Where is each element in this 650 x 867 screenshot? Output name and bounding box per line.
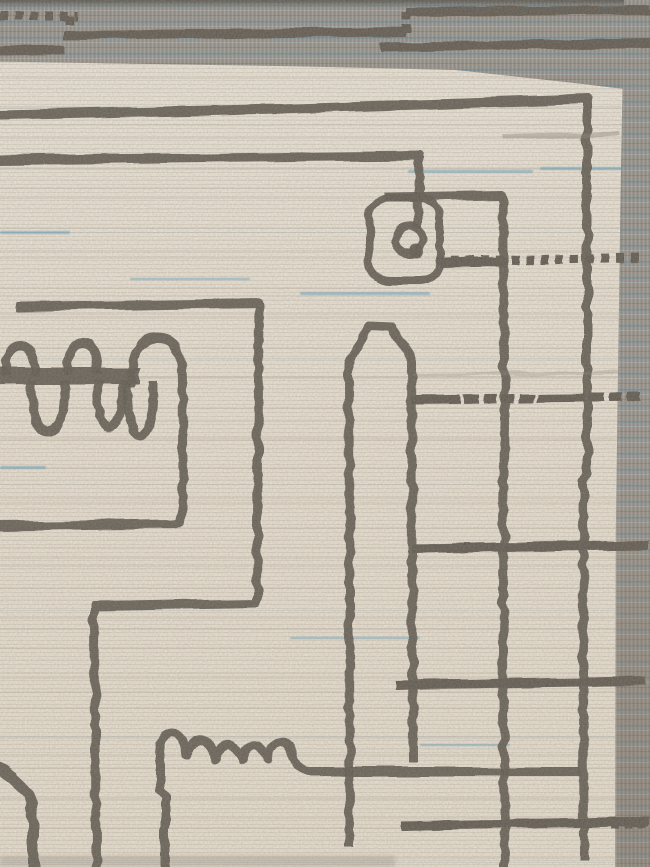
rug-photo <box>0 0 650 867</box>
photo-grain <box>0 0 650 867</box>
rug-line-drawing <box>0 0 650 867</box>
